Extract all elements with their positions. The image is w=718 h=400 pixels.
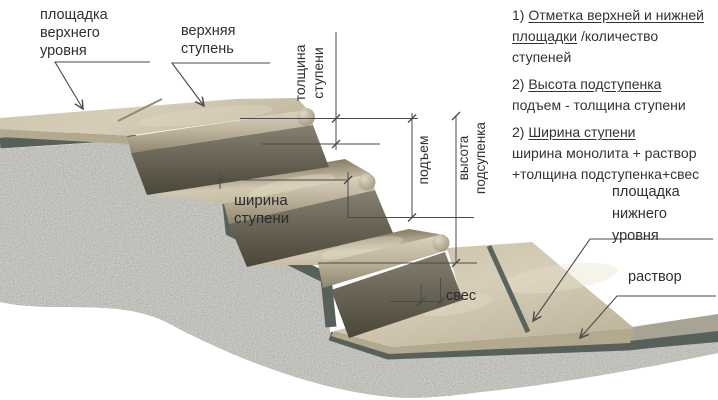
note-3-line-3: +толщина подступенка+свес (512, 164, 717, 185)
dim-label-rise: подъем (414, 130, 434, 190)
note-item-3: 2) Ширина ступени ширина монолита + раст… (512, 122, 717, 185)
stairs-construction-diagram: площадка верхнего уровня верхняя ступень… (0, 0, 718, 400)
dim-label-tread-thickness-line1: толщина (291, 33, 309, 113)
note-3-line-2: ширина монолита + раствор (512, 143, 717, 164)
dim-label-riser-height-line2: подсупенка (472, 120, 489, 196)
step-2-nose-cap (359, 174, 376, 191)
note-2-prefix: 2) (512, 76, 528, 92)
dim-label-step-width: ширина ступени (234, 192, 344, 228)
note-3-prefix: 2) (512, 124, 528, 140)
callout-upper-platform-line1: площадка (40, 6, 150, 24)
dim-label-riser-height-line1: высота (455, 120, 472, 196)
notes-block: 1) Отметка верхней и нижней площадки /ко… (512, 5, 717, 191)
callout-upper-step: верхняя ступень (181, 22, 276, 58)
note-2-line-1: 2) Высота подступенка (512, 74, 717, 95)
note-2-underlined: Высота подступенка (528, 76, 661, 92)
note-3-underlined: Ширина ступени (528, 124, 635, 140)
note-1-underlined: Отметка верхней и нижней (528, 7, 704, 23)
callout-lower-platform-line3: уровня (612, 225, 707, 247)
note-1-prefix: 1) (512, 7, 528, 23)
dim-label-overhang: свес (446, 287, 476, 305)
callout-upper-platform-line3: уровня (40, 42, 150, 60)
callout-mortar: раствор (628, 268, 682, 286)
dim-label-tread-thickness: толщина ступени (291, 33, 333, 113)
note-2-line-2: подъем - толщина ступени (512, 95, 717, 116)
note-1-line-2: площадки /количество ступеней (512, 26, 717, 68)
note-1-line-1: 1) Отметка верхней и нижней (512, 5, 717, 26)
callout-upper-step-line1: верхняя (181, 22, 276, 40)
callout-upper-platform: площадка верхнего уровня (40, 6, 150, 60)
callout-lower-platform-line2: нижнего (612, 203, 707, 225)
dim-label-tread-thickness-line2: ступени (309, 33, 327, 113)
callout-upper-step-line2: ступень (181, 40, 276, 58)
note-1-line2-underlined: площадки (512, 28, 577, 44)
step-3-nose-cap (433, 235, 450, 252)
dim-label-riser-height: высота подсупенка (455, 120, 491, 196)
leader-upper-platform (55, 62, 150, 109)
note-item-2: 2) Высота подступенка подъем - толщина с… (512, 74, 717, 116)
note-item-1: 1) Отметка верхней и нижней площадки /ко… (512, 5, 717, 68)
note-3-line-1: 2) Ширина ступени (512, 122, 717, 143)
callout-upper-platform-line2: верхнего (40, 24, 150, 42)
